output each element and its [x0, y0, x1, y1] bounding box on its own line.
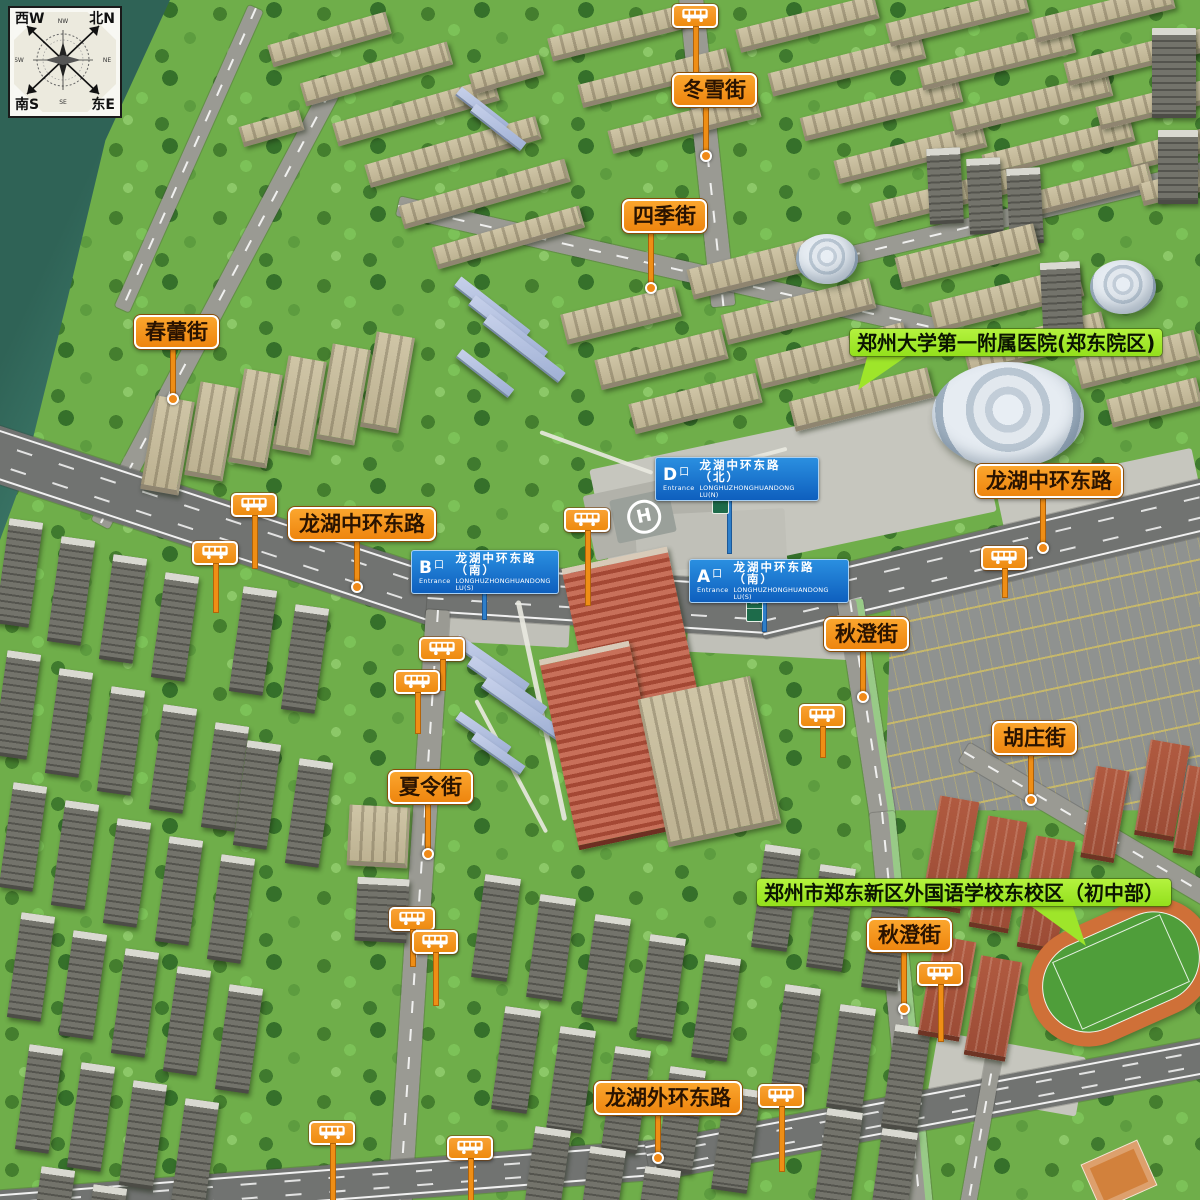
building	[547, 6, 682, 61]
building	[111, 948, 159, 1058]
building	[636, 934, 686, 1042]
bus-stop-icon	[981, 546, 1027, 570]
label-dot	[645, 282, 657, 294]
building	[155, 836, 203, 946]
street-label-longhuzhonghuan-east: 龙湖中环东路	[975, 464, 1123, 498]
building	[482, 314, 566, 383]
bus-stop-icon	[192, 541, 238, 565]
label-dot	[857, 691, 869, 703]
label-dot	[167, 393, 179, 405]
bus-stop-pole	[1002, 568, 1008, 598]
hospital-label-pointer	[858, 354, 918, 394]
building	[691, 954, 741, 1062]
street-label-xialingjie: 夏令街	[388, 770, 473, 804]
street-label-sijijie: 四季街	[622, 199, 707, 233]
building	[7, 912, 55, 1022]
map-canvas: H 冬雪街 四季街 春蕾街 龙湖中环东路 龙湖中环东路 秋澄街 胡庄街	[0, 0, 1200, 1200]
building	[491, 1006, 541, 1114]
bus-stop-icon	[389, 907, 435, 931]
sports-court	[1081, 1140, 1158, 1200]
street-label-qiuchengjie-north: 秋澄街	[824, 617, 909, 651]
bus-stop-pole	[213, 563, 219, 613]
building	[560, 286, 682, 345]
building	[360, 331, 415, 433]
svg-text:SW: SW	[15, 57, 24, 64]
helipad-h-mark: H	[624, 497, 664, 537]
building	[581, 914, 631, 1022]
label-pointer	[655, 1108, 661, 1157]
building	[51, 800, 99, 910]
building	[67, 1062, 115, 1172]
entrance-sign-A: A口 Entrance 龙湖中环东路 （南） LONGHUZHONGHUANDO…	[689, 559, 849, 603]
building	[0, 518, 43, 628]
compass-rose: 西W 北N 南S 东E NW NE SE SW	[8, 6, 122, 118]
building	[968, 815, 1027, 933]
building	[15, 1044, 63, 1154]
bus-stop-icon	[309, 1121, 355, 1145]
school-label-pointer	[1020, 904, 1090, 948]
label-pointer	[860, 645, 866, 696]
bus-stop-icon	[447, 1136, 493, 1160]
building	[103, 818, 151, 928]
label-dot	[652, 1152, 664, 1164]
label-pointer	[648, 226, 654, 287]
svg-text:SE: SE	[59, 99, 67, 106]
bus-stop-pole	[468, 1158, 474, 1200]
building	[926, 147, 964, 225]
dome-building-small-2	[1090, 260, 1156, 314]
building	[228, 368, 283, 468]
label-pointer	[170, 343, 176, 398]
bus-stop-pole	[938, 984, 944, 1042]
building	[767, 35, 926, 97]
label-pointer	[703, 101, 709, 155]
building	[628, 373, 763, 435]
building	[47, 536, 95, 646]
street-label-dongxuejie: 冬雪街	[672, 73, 757, 107]
street-label-huzhuangjie: 胡庄街	[992, 721, 1077, 755]
building	[229, 586, 277, 696]
label-dot	[422, 848, 434, 860]
building	[735, 0, 880, 53]
building	[1152, 28, 1196, 118]
poi-label-school: 郑州市郑东新区外国语学校东校区（初中部）	[757, 879, 1171, 906]
bus-stop-icon	[419, 637, 465, 661]
building	[0, 782, 47, 892]
building	[885, 0, 1030, 47]
building	[99, 554, 147, 664]
bus-stop-icon	[799, 704, 845, 728]
label-dot	[351, 581, 363, 593]
building	[281, 604, 329, 714]
label-dot	[700, 150, 712, 162]
bus-stop-icon	[231, 493, 277, 517]
building	[59, 930, 107, 1040]
building	[950, 73, 1114, 136]
building	[469, 54, 545, 94]
bus-stop-pole	[779, 1106, 785, 1172]
label-pointer	[425, 798, 431, 853]
bus-stop-pole	[693, 26, 699, 74]
building	[826, 1004, 876, 1112]
building	[119, 1080, 167, 1190]
building	[800, 79, 964, 142]
label-pointer	[1028, 749, 1034, 799]
building	[215, 984, 263, 1094]
bus-stop-icon	[917, 962, 963, 986]
bus-stop-icon	[672, 4, 718, 28]
dome-building-small-1	[796, 234, 858, 284]
svg-text:NE: NE	[103, 57, 111, 64]
bus-stop-pole	[585, 530, 591, 606]
bus-stop-pole	[433, 952, 439, 1006]
bus-stop-pole	[415, 692, 421, 734]
building	[151, 572, 199, 682]
poi-label-hospital: 郑州大学第一附属医院(郑东院区)	[850, 329, 1162, 356]
building	[0, 650, 41, 760]
building	[184, 381, 239, 481]
label-dot	[1025, 794, 1037, 806]
bus-stop-icon	[394, 670, 440, 694]
building	[471, 874, 521, 982]
building	[594, 329, 729, 391]
bus-stop-pole	[252, 515, 258, 569]
building	[456, 349, 515, 398]
building	[526, 894, 576, 1002]
bus-stop-icon	[758, 1084, 804, 1108]
building	[771, 984, 821, 1092]
entrance-sign-B: B口 Entrance 龙湖中环东路 （南） LONGHUZHONGHUANDO…	[411, 550, 559, 594]
building	[316, 343, 371, 445]
label-pointer	[901, 946, 907, 1008]
hospital-round-building	[932, 362, 1084, 468]
building	[207, 854, 255, 964]
bus-stop-pole	[820, 726, 826, 758]
bus-stop-pole	[440, 659, 446, 691]
street-label-longhuzhonghuan-west: 龙湖中环东路	[288, 507, 436, 541]
label-dot	[1037, 542, 1049, 554]
building	[1106, 377, 1200, 428]
building	[285, 758, 333, 868]
label-pointer	[1040, 491, 1046, 547]
street-label-longhuwaihuan: 龙湖外环东路	[594, 1081, 742, 1115]
building	[966, 157, 1004, 235]
bus-stop-pole	[330, 1143, 336, 1200]
entrance-sign-D: D口 Entrance 龙湖中环东路 （北） LONGHUZHONGHUANDO…	[655, 457, 819, 501]
bus-stop-icon	[412, 930, 458, 954]
street-label-chunleijie: 春蕾街	[134, 315, 219, 349]
bus-stop-icon	[564, 508, 610, 532]
street-label-qiuchengjie-south: 秋澄街	[867, 918, 952, 952]
svg-text:NW: NW	[58, 18, 68, 25]
building	[97, 686, 145, 796]
building	[1158, 130, 1198, 204]
label-dot	[898, 1003, 910, 1015]
building	[163, 966, 211, 1076]
building	[346, 804, 410, 868]
building	[272, 355, 327, 455]
building	[45, 668, 93, 778]
building	[546, 1026, 596, 1134]
compass-star: NW NE SE SW	[15, 14, 111, 106]
building	[149, 704, 197, 814]
building	[267, 11, 392, 67]
